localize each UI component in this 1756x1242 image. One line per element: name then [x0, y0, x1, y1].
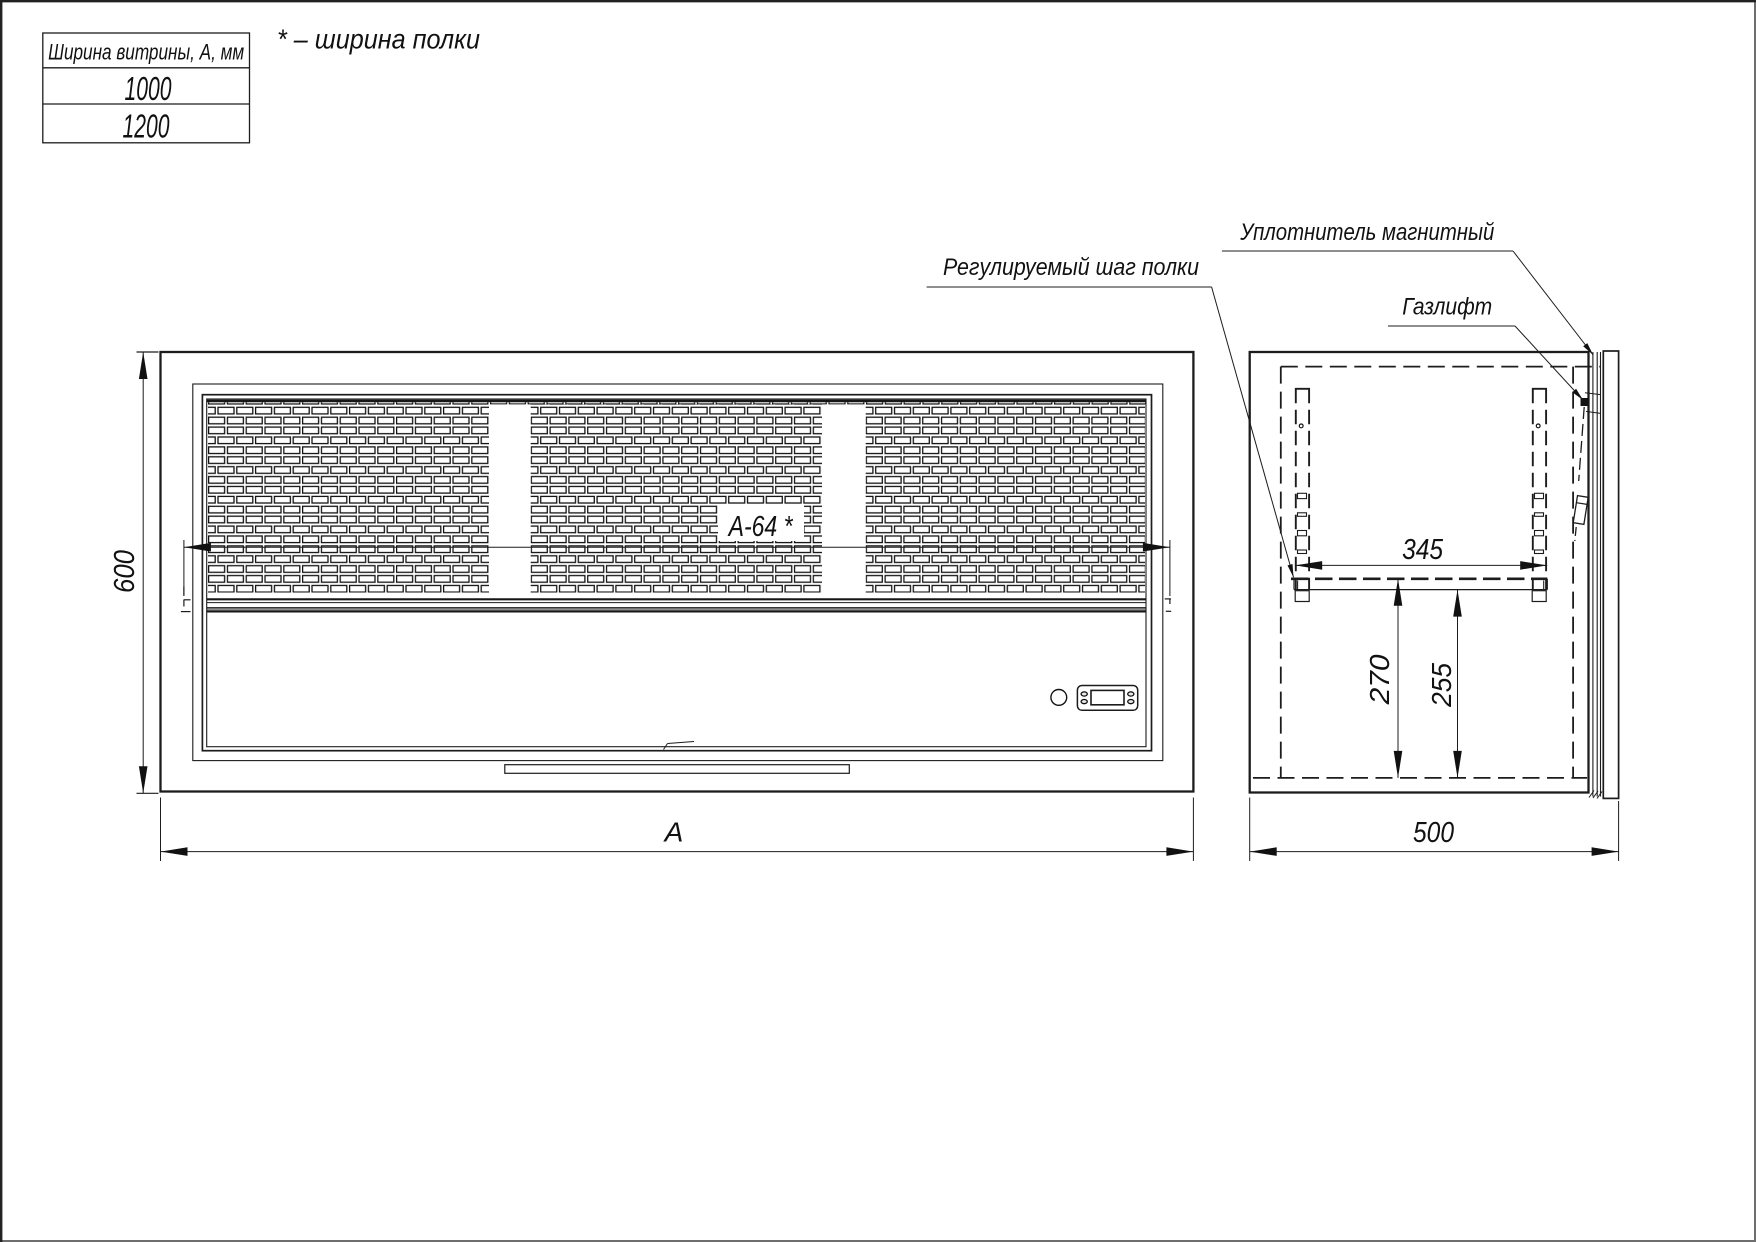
svg-text:1000: 1000 [125, 70, 172, 107]
svg-text:Газлифт: Газлифт [1402, 294, 1492, 321]
svg-text:1200: 1200 [123, 107, 170, 144]
svg-text:Регулируемый шаг полки: Регулируемый шаг полки [943, 254, 1199, 281]
svg-text:Уплотнитель магнитный: Уплотнитель магнитный [1239, 219, 1494, 246]
svg-text:* – ширина полки: * – ширина полки [277, 24, 480, 55]
svg-text:А: А [663, 817, 684, 848]
svg-text:270: 270 [1364, 654, 1395, 706]
svg-text:600: 600 [109, 550, 141, 593]
svg-text:Ширина витрины, А, мм: Ширина витрины, А, мм [48, 40, 244, 65]
svg-text:255: 255 [1426, 662, 1457, 707]
svg-text:500: 500 [1413, 817, 1454, 849]
svg-text:345: 345 [1402, 534, 1444, 566]
svg-text:А-64 *: А-64 * [727, 511, 794, 543]
